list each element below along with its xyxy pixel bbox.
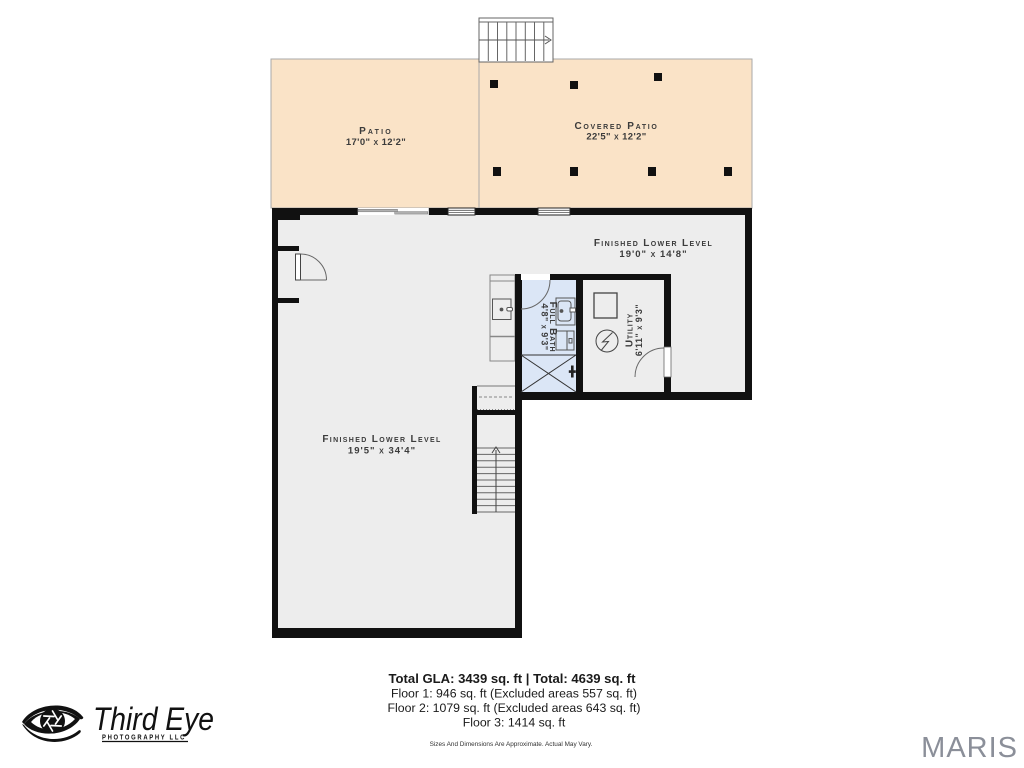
svg-text:17'0" x 12'2": 17'0" x 12'2" [346,137,406,148]
svg-text:Third Eye: Third Eye [93,701,214,737]
svg-text:Floor 2: 1079 sq. ft (Excluded: Floor 2: 1079 sq. ft (Excluded areas 643… [388,701,641,715]
svg-text:22'5" x 12'2": 22'5" x 12'2" [586,132,646,143]
svg-text:Total GLA: 3439 sq. ft | Total: Total GLA: 3439 sq. ft | Total: 4639 sq.… [389,671,637,686]
svg-text:Sizes And Dimensions Are Appro: Sizes And Dimensions Are Approximate. Ac… [430,741,593,748]
svg-text:Floor 3: 1414 sq. ft: Floor 3: 1414 sq. ft [463,716,566,730]
svg-text:Covered Patio: Covered Patio [575,121,659,132]
svg-text:4'8" x 9'3": 4'8" x 9'3" [540,303,550,350]
svg-text:19'5" x 34'4": 19'5" x 34'4" [348,446,416,457]
svg-text:MARIS: MARIS [921,732,1018,764]
svg-text:PHOTOGRAPHY LLC: PHOTOGRAPHY LLC [102,735,186,742]
svg-text:Floor 1: 946 sq. ft (Excluded: Floor 1: 946 sq. ft (Excluded areas 557 … [391,687,637,701]
svg-text:Patio: Patio [359,126,393,137]
svg-text:Finished Lower Level: Finished Lower Level [322,434,441,445]
svg-text:6'11" x 9'3": 6'11" x 9'3" [634,304,644,356]
svg-text:19'0" x 14'8": 19'0" x 14'8" [619,249,687,260]
svg-text:Finished Lower Level: Finished Lower Level [594,238,713,249]
